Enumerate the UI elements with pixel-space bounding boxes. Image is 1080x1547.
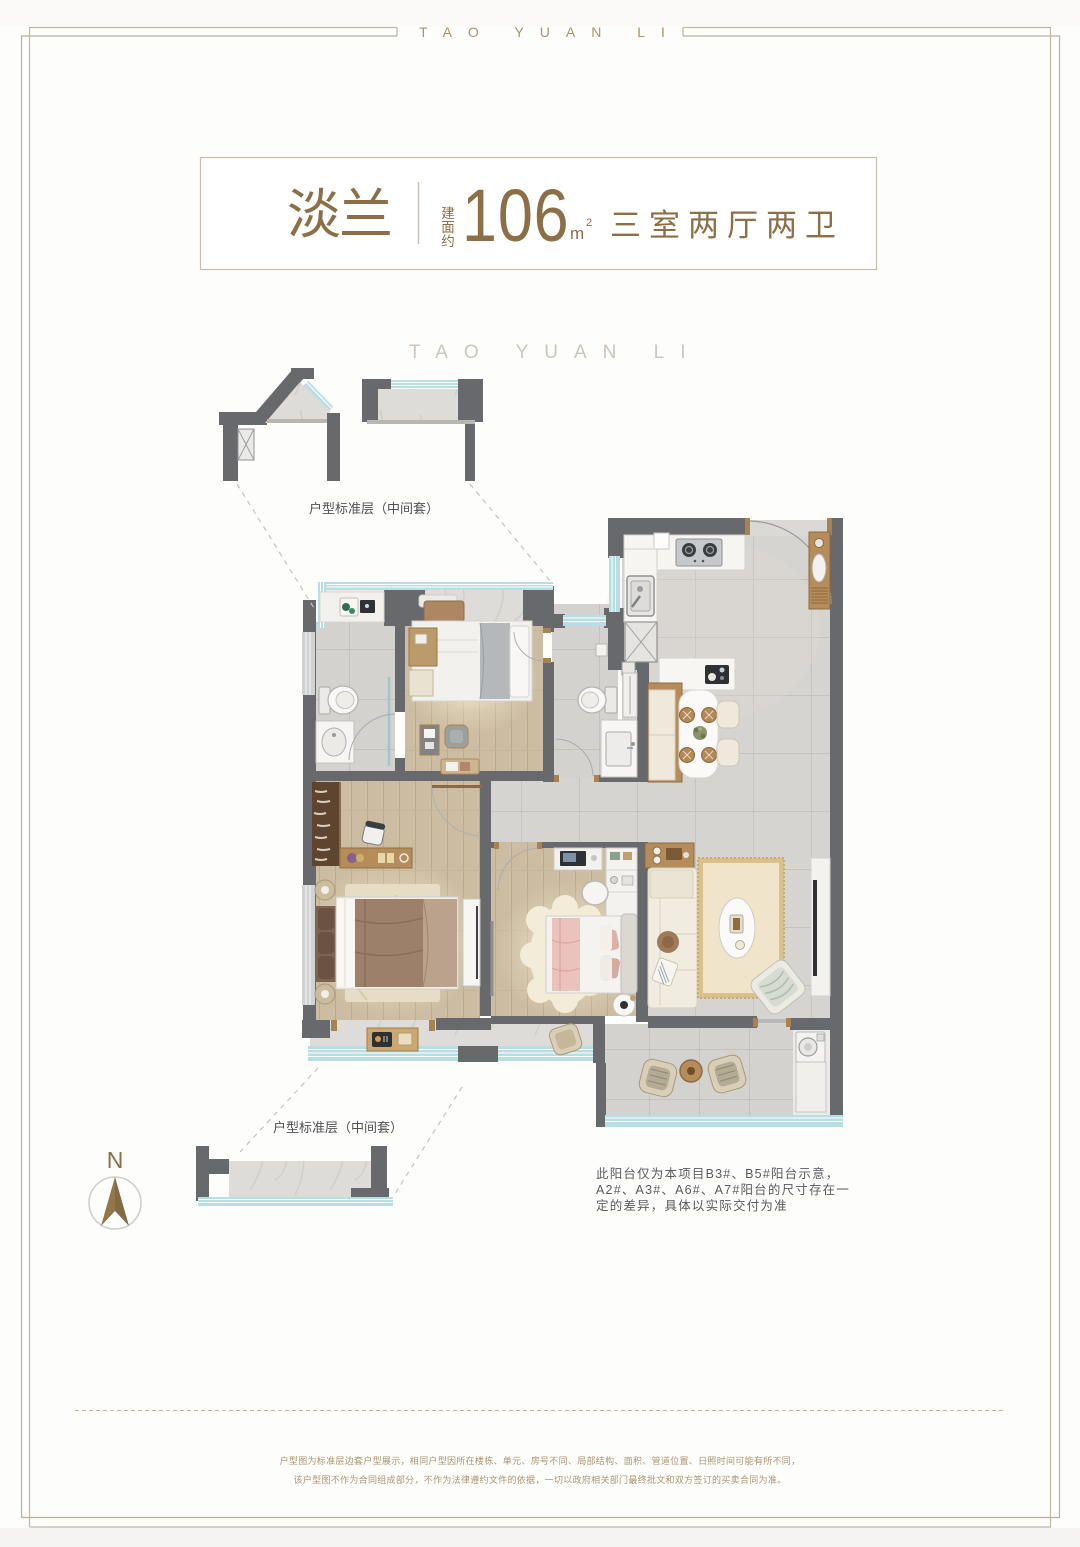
- svg-text:建: 建: [441, 206, 455, 221]
- svg-text:2: 2: [586, 217, 592, 229]
- svg-text:淡兰: 淡兰: [287, 185, 391, 245]
- svg-text:户型标准层（中间套）: 户型标准层（中间套）: [273, 1120, 403, 1135]
- svg-text:户型标准层（中间套）: 户型标准层（中间套）: [309, 501, 439, 516]
- svg-text:该户型图不作为合同组成部分，不作为法律遵约文件的依据，一切以: 该户型图不作为合同组成部分，不作为法律遵约文件的依据，一切以政府相关部门最终批文…: [294, 1474, 787, 1485]
- svg-text:A2#、A3#、A6#、A7#阳台的尺寸存在一: A2#、A3#、A6#、A7#阳台的尺寸存在一: [596, 1182, 850, 1197]
- svg-text:面: 面: [441, 220, 455, 235]
- svg-text:106: 106: [462, 174, 569, 257]
- svg-text:N: N: [107, 1147, 124, 1173]
- svg-text:TAO YUAN LI: TAO YUAN LI: [409, 342, 702, 363]
- svg-text:定的差异，具体以实际交付为准: 定的差异，具体以实际交付为准: [596, 1198, 788, 1213]
- svg-text:约: 约: [441, 234, 455, 249]
- svg-text:m: m: [570, 224, 584, 243]
- svg-text:此阳台仅为本项目B3#、B5#阳台示意，: 此阳台仅为本项目B3#、B5#阳台示意，: [596, 1166, 839, 1181]
- svg-text:TAO YUAN LI: TAO YUAN LI: [419, 24, 681, 40]
- svg-text:三室两厅两卫: 三室两厅两卫: [610, 208, 844, 243]
- svg-text:户型图为标准层边套户型展示，相同户型因所在楼栋、单元、房号不: 户型图为标准层边套户型展示，相同户型因所在楼栋、单元、房号不同、局部结构、面积、…: [280, 1455, 801, 1466]
